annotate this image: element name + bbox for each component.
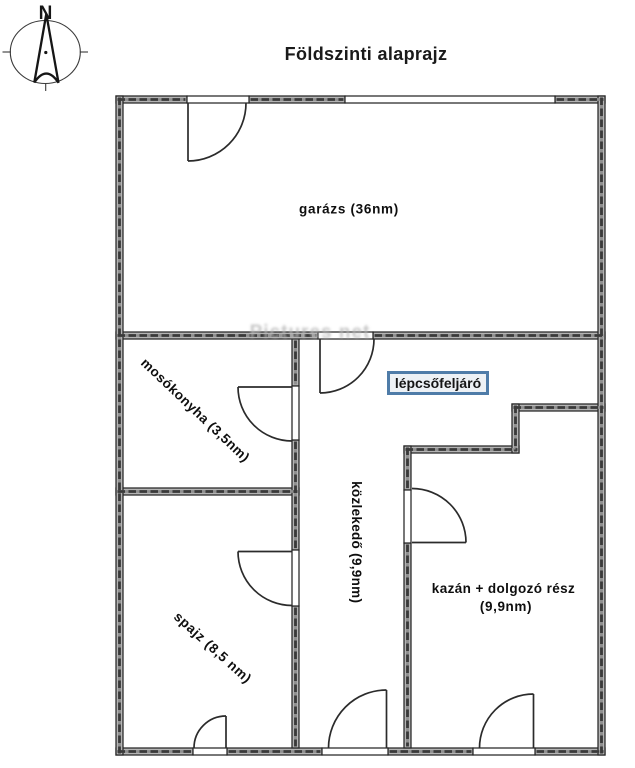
svg-text:N: N	[39, 3, 53, 24]
svg-text:mosókonyha (3,5nm): mosókonyha (3,5nm)	[138, 355, 253, 465]
svg-text:kazán + dolgozó rész: kazán + dolgozó rész	[432, 581, 575, 596]
svg-text:(9,9nm): (9,9nm)	[480, 599, 532, 614]
svg-text:garázs (36nm): garázs (36nm)	[299, 202, 399, 217]
svg-text:közlekedő (9,9nm): közlekedő (9,9nm)	[349, 481, 364, 603]
svg-text:spajz (8,5 nm): spajz (8,5 nm)	[171, 609, 255, 686]
